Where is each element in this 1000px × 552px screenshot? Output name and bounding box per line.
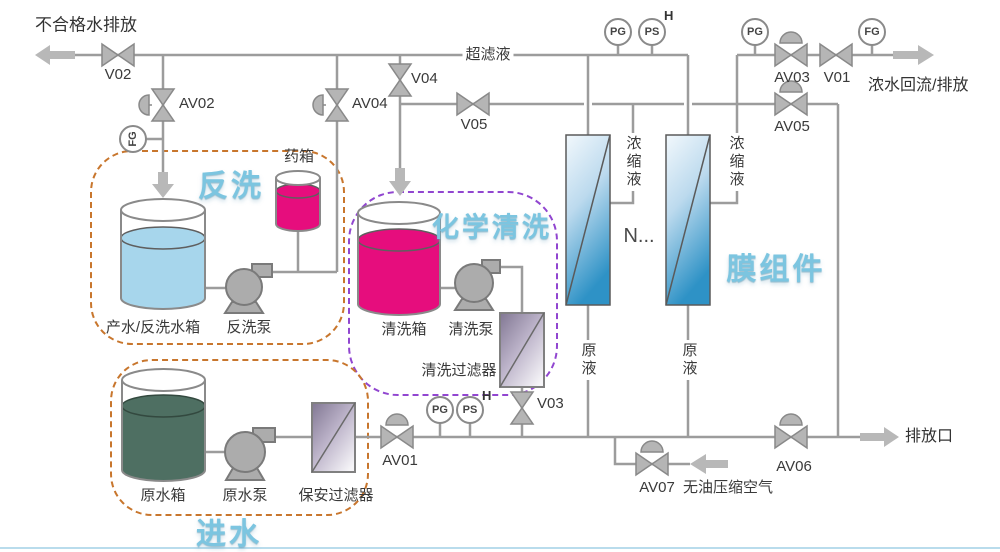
label-av03: AV03 [774,70,810,87]
label-discharge-outlet: 排放口 [905,428,953,446]
label-v01: V01 [824,70,851,87]
label-backwash-pump: 反洗泵 [226,320,271,337]
label-raw-liquid-2: 原液 [679,340,700,380]
arrow-into-clean-tank [389,168,411,196]
fg-gauge-text: FG [127,131,139,146]
valve-v04 [389,64,411,96]
label-v02: V02 [105,67,132,84]
chemical-clean-section-title: 化学清洗 [432,206,552,245]
arrow-into-backwash-tank [152,172,174,198]
valve-v05 [457,93,489,115]
label-backwash-tank: 产水/反洗水箱 [106,320,200,337]
membrane-module-1 [566,135,610,305]
process-flow-diagram: 不合格水排放 V02 AV02 FG 超滤液 V04 AV04 V05 PG P… [0,0,1000,552]
valve-v01 [820,44,852,66]
valve-av01 [381,414,413,448]
label-v04: V04 [411,71,438,88]
high-alarm-tag: H [664,8,673,23]
backwash-pump [225,264,272,313]
label-concentrate-2: 浓缩液 [726,133,747,191]
label-av06: AV06 [776,459,812,476]
ps-gauge-text: PS [463,404,478,416]
label-concentrate-return: 浓水回流/排放 [868,77,968,95]
chemical-dosing-tank [276,171,320,231]
fg-gauge-text: FG [864,26,879,38]
high-alarm-tag: H [482,388,491,403]
label-ultrafiltrate: 超滤液 [462,47,513,64]
membrane-module-2 [666,135,710,305]
ps-gauge-text: PS [645,26,660,38]
pg-gauge-text: PG [432,404,448,416]
valve-av03 [775,32,807,66]
label-cleaning-filter: 清洗过滤器 [421,363,496,380]
label-av05: AV05 [774,119,810,136]
label-security-filter: 保安过滤器 [298,488,373,505]
label-av02: AV02 [179,96,215,113]
pg-gauge-text: PG [610,26,626,38]
label-unqualified-water-discharge: 不合格水排放 [35,17,137,36]
cleaning-filter [500,313,544,387]
valve-av07 [636,441,668,475]
label-cleaning-pump: 清洗泵 [448,322,493,339]
label-av04: AV04 [352,96,388,113]
cleaning-pump [455,260,500,310]
security-filter [312,403,355,472]
valve-av04 [313,89,348,121]
label-more-modules: N... [623,225,654,247]
valve-v03 [511,392,533,424]
label-compressed-air: 无油压缩空气 [683,480,773,497]
label-cleaning-tank: 清洗箱 [381,322,426,339]
backwash-tank [121,199,205,309]
label-av07: AV07 [639,480,675,497]
arrow-compressed-air-in [690,454,728,474]
backwash-section-title: 反洗 [198,161,264,205]
raw-water-tank [122,369,205,481]
label-raw-water-tank: 原水箱 [140,488,185,505]
pg-gauge-text: PG [747,26,763,38]
label-av01: AV01 [382,453,418,470]
label-raw-water-pump: 原水泵 [222,488,267,505]
label-v05: V05 [461,117,488,134]
valve-av06 [775,414,807,448]
feed-section-title: 进水 [196,509,262,552]
arrow-discharge-out [860,427,899,447]
valve-av02 [139,89,174,121]
cleaning-tank [358,202,440,315]
label-v03: V03 [537,396,564,413]
arrow-unqualified-out [35,45,75,65]
label-chemical-tank: 药箱 [284,149,314,166]
valve-v02 [102,44,134,66]
arrow-concentrate-out [893,45,934,65]
label-concentrate-1: 浓缩液 [623,133,644,191]
label-raw-liquid-1: 原液 [578,340,599,380]
membrane-section-title: 膜组件 [727,244,826,288]
raw-water-pump [225,428,275,480]
